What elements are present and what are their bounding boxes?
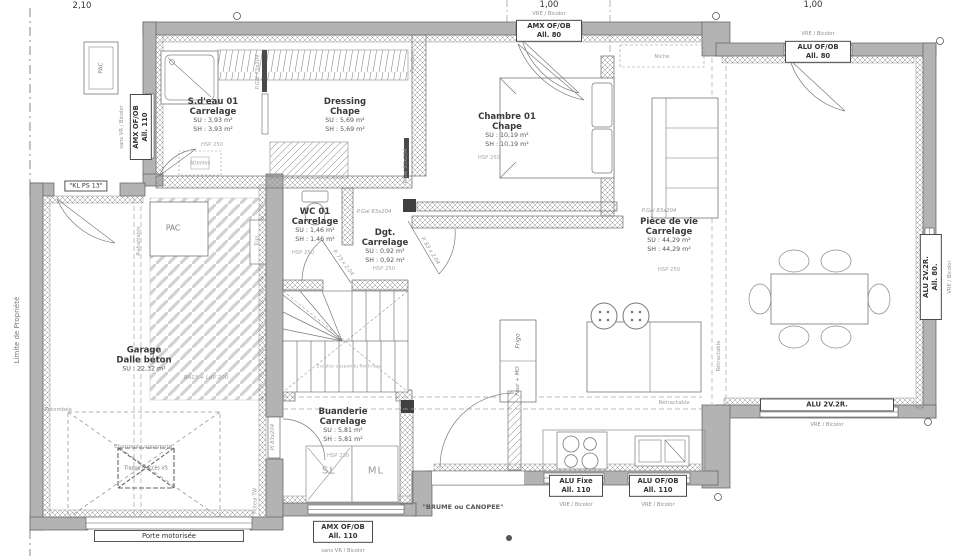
room-name: Dgt. bbox=[362, 228, 409, 238]
hsp-wc: HSP 250 bbox=[292, 250, 314, 256]
room-label-dgt: Dgt. Carrelage SU : 0,92 m² SH : 0,92 m² bbox=[362, 228, 409, 266]
room-label-buanderie: Buanderie Carrelage SU : 5,81 m² SH : 5,… bbox=[318, 407, 367, 445]
window-note-buanderie-amx: sans VR / Bicolor bbox=[321, 548, 365, 554]
retractable-horizontal-label: Rétractable bbox=[658, 400, 689, 406]
room-su: SU : 22,32 m² bbox=[116, 366, 171, 375]
window-sill: All. 80 bbox=[789, 52, 847, 61]
hsp-buanderie: HSP 230 bbox=[327, 453, 349, 459]
rabattable-label: Rabattable bbox=[136, 226, 142, 256]
window-sill: All. 110 bbox=[141, 98, 150, 156]
seche-linge-label: ML bbox=[368, 466, 384, 477]
window-note-south-alu: VRE / Bicolor bbox=[810, 422, 843, 428]
door-label-pgal83-a: P.Gal 83x204 bbox=[403, 149, 409, 184]
room-finish: Chape bbox=[324, 107, 366, 117]
room-sh: SH : 1,46 m² bbox=[292, 236, 339, 245]
window-type: AMX OF/OB bbox=[132, 98, 141, 156]
room-finish: Carrelage bbox=[318, 417, 367, 427]
room-label-chambre: Chambre 01 Chape SU : 10,19 m² SH : 10,1… bbox=[478, 112, 536, 150]
room-sh: SH : 10,19 m² bbox=[478, 141, 536, 150]
room-name: Chambre 01 bbox=[478, 112, 536, 122]
room-sh: SH : 5,81 m² bbox=[318, 436, 367, 445]
room-sh: SH : 3,93 m² bbox=[188, 126, 238, 135]
door-label-porte-motorisee: Porte motorisée bbox=[94, 530, 244, 542]
room-name: Dressing bbox=[324, 97, 366, 107]
room-finish: Chape bbox=[478, 122, 536, 132]
attentes-label: Attentes bbox=[190, 162, 210, 167]
pac-garage-label: PAC bbox=[166, 224, 180, 233]
hsp-piece-de-vie: HSP 250 bbox=[658, 267, 680, 273]
room-finish: Carrelage bbox=[640, 227, 698, 237]
window-note-left-amx: sans VR / Bicolor bbox=[119, 105, 125, 149]
window-sill: All. 110 bbox=[633, 486, 683, 495]
room-label-dressing: Dressing Chape SU : 5,69 m² SH : 5,69 m² bbox=[324, 97, 366, 135]
dimension-left: 2,10 bbox=[73, 1, 92, 11]
retractable-vertical-label: Rétractable bbox=[716, 340, 722, 371]
hsp-chambre: HSP 250 bbox=[478, 155, 500, 161]
moteur-label: Moteur TW bbox=[254, 488, 259, 514]
window-type: ALU 2V.2R. bbox=[764, 400, 890, 409]
frigo-label: Frigo bbox=[515, 333, 522, 348]
room-su: SU : 1,46 m² bbox=[292, 227, 339, 236]
room-su: SU : 5,69 m² bbox=[324, 117, 366, 126]
window-label-south-alu: ALU 2V.2R. bbox=[760, 398, 894, 411]
tripl-label: Tripl bbox=[256, 236, 261, 246]
trappe-label: Trappe d'accès VS bbox=[124, 467, 168, 472]
hsp-dgt: HSP 250 bbox=[373, 266, 395, 272]
four-mo-label: Four + MO bbox=[515, 366, 521, 395]
window-note-top-alu: VRE / Bicolor bbox=[801, 31, 834, 37]
door-label-kl-ps13: "KL PS 13" bbox=[64, 181, 107, 192]
door-label-pgal73: P.Gal 73x204 bbox=[255, 55, 261, 90]
window-sill: All. 80 bbox=[520, 31, 578, 40]
room-sh: SH : 44,29 m² bbox=[640, 246, 698, 255]
room-su: SU : 44,29 m² bbox=[640, 237, 698, 246]
door-label-pgal83-c: P.Gal 83x204 bbox=[642, 208, 677, 214]
room-name: Buanderie bbox=[318, 407, 367, 417]
dimension-mid: 1,00 bbox=[540, 0, 559, 10]
floor-plan-page: 2,10 1,00 1,00 Limite de Propriété S.d'e… bbox=[0, 0, 961, 558]
window-type: ALU OF/OB bbox=[633, 477, 683, 486]
window-note-kitchen-fixe: VRE / Bicolor bbox=[559, 502, 592, 508]
room-name: Garage bbox=[116, 345, 171, 355]
window-note-right-alu: VRE / Bicolor bbox=[947, 260, 953, 293]
dimension-right: 1,00 bbox=[804, 0, 823, 10]
room-label-sdeau: S.d'eau 01 Carrelage SU : 3,93 m² SH : 3… bbox=[188, 97, 238, 135]
window-label-kitchen-fixe: ALU Fixe All. 110 bbox=[549, 475, 603, 497]
penderie-label: Penderie bbox=[410, 49, 416, 73]
window-sill: All. 80. bbox=[931, 238, 940, 316]
window-note-kitchen-ofob: VRE / Bicolor bbox=[641, 502, 674, 508]
retombee-label: Retombée bbox=[44, 407, 72, 413]
room-name: WC 01 bbox=[292, 207, 339, 217]
room-su: SU : 10,19 m² bbox=[478, 132, 536, 141]
window-label-top-amx: AMX OF/OB All. 80 bbox=[516, 20, 582, 42]
room-name: S.d'eau 01 bbox=[188, 97, 238, 107]
window-note-top-amx: VRE / Bicolor bbox=[532, 11, 565, 17]
window-sill: All. 110 bbox=[553, 486, 599, 495]
door-label-brume-canopee: "BRUME ou CANOPEE" bbox=[423, 503, 504, 511]
room-finish: Dalle béton bbox=[116, 356, 171, 366]
lave-linge-label: SL bbox=[322, 466, 336, 477]
window-label-kitchen-ofob: ALU OF/OB All. 110 bbox=[629, 475, 687, 497]
room-label-wc: WC 01 Carrelage SU : 1,46 m² SH : 1,46 m… bbox=[292, 207, 339, 245]
door-label-pgal83-b: P.Gal 83x204 bbox=[357, 209, 392, 215]
room-finish: Carrelage bbox=[292, 217, 339, 227]
window-sill: All. 110 bbox=[317, 532, 369, 541]
room-label-piece-de-vie: Pièce de vie Carrelage SU : 44,29 m² SH … bbox=[640, 217, 698, 255]
room-su: SU : 5,81 m² bbox=[318, 427, 367, 436]
room-label-garage: Garage Dalle béton SU : 22,32 m² bbox=[116, 345, 171, 374]
garage-wall-note: BA13 + LdV 200 bbox=[184, 375, 228, 381]
window-type: ALU Fixe bbox=[553, 477, 599, 486]
niche-label: Niche bbox=[654, 54, 669, 60]
window-label-right-alu: ALU 2V.2R. All. 80. bbox=[920, 234, 942, 320]
property-line-label: Limite de Propriété bbox=[13, 297, 21, 364]
room-finish: Carrelage bbox=[188, 107, 238, 117]
window-label-buanderie-amx: AMX OF/OB All. 110 bbox=[313, 521, 373, 543]
window-label-top-alu: ALU OF/OB All. 80 bbox=[785, 41, 851, 63]
floor-plan-drawing bbox=[0, 0, 961, 558]
window-type: ALU 2V.2R. bbox=[922, 238, 931, 316]
window-type: ALU OF/OB bbox=[789, 43, 847, 52]
escalier-label: Escalier suspendu Pont-lisse bbox=[317, 365, 382, 370]
window-type: AMX OF/OB bbox=[520, 22, 578, 31]
room-sh: SH : 0,92 m² bbox=[362, 257, 409, 266]
room-finish: Carrelage bbox=[362, 238, 409, 248]
window-label-left-amx: AMX OF/OB All. 110 bbox=[130, 94, 152, 160]
room-sh: SH : 5,69 m² bbox=[324, 126, 366, 135]
door-label-pl83: Pl 83x204 bbox=[270, 424, 276, 450]
hsp-sdeau: HSP 250 bbox=[201, 142, 223, 148]
room-name: Pièce de vie bbox=[640, 217, 698, 227]
pac-exterior-label: PAC bbox=[98, 62, 105, 73]
room-su: SU : 3,93 m² bbox=[188, 117, 238, 126]
window-type: AMX OF/OB bbox=[317, 523, 369, 532]
charpente-label: Charpente apparente bbox=[114, 444, 172, 450]
room-su: SU : 0,92 m² bbox=[362, 248, 409, 257]
